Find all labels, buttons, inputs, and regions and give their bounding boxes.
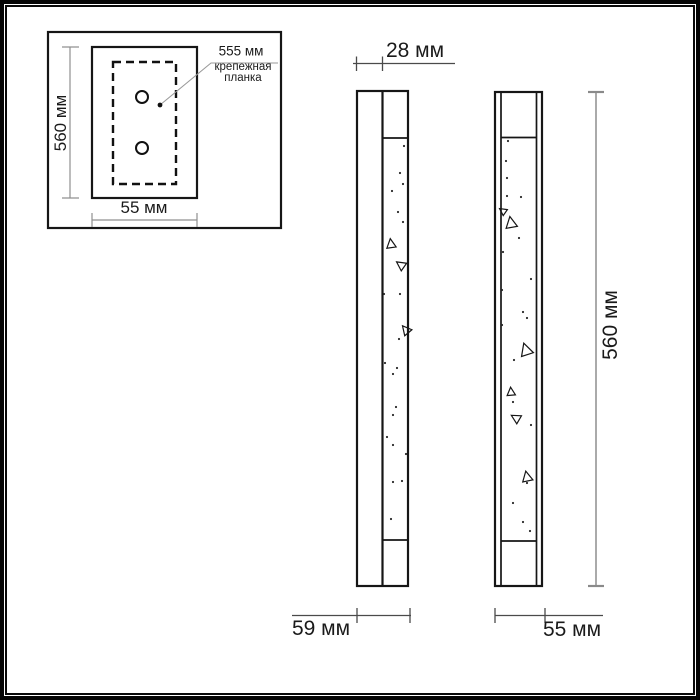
front-width-label: 55 мм [543, 618, 601, 642]
mounting-plate-outline [92, 47, 197, 198]
speck-dot [392, 373, 394, 375]
speck-dot [507, 140, 509, 142]
speck-dot [526, 317, 528, 319]
speck-triangle-icon [506, 387, 515, 396]
speck-dot [530, 424, 532, 426]
speck-triangle-icon [399, 323, 412, 336]
speck-dot [383, 293, 385, 295]
speck-dot [505, 160, 507, 162]
inset-width-label: 55 мм [120, 198, 167, 218]
front-diffuser-specks [497, 140, 533, 532]
speck-triangle-icon [497, 206, 507, 216]
side-view-outline [357, 91, 408, 586]
speck-triangle-icon [386, 238, 397, 248]
speck-dot [501, 324, 503, 326]
side-depth-total-label: 59 мм [292, 617, 350, 641]
mounting-hole-bottom-icon [136, 142, 148, 154]
plate-caption: крепежная планка [215, 62, 272, 84]
front-view-outline [495, 92, 542, 586]
speck-dot [395, 406, 397, 408]
speck-dot [390, 518, 392, 520]
speck-dot [398, 338, 400, 340]
speck-triangle-icon [504, 216, 517, 229]
inset-height-label: 560 мм [51, 95, 71, 151]
plate-caption-line2: планка [215, 73, 272, 84]
speck-dot [506, 195, 508, 197]
speck-dot [522, 311, 524, 313]
speck-triangle-icon [521, 470, 533, 482]
speck-dot [518, 237, 520, 239]
speck-dot [402, 221, 404, 223]
speck-dot [392, 444, 394, 446]
speck-dot [391, 190, 393, 192]
speck-dot [399, 293, 401, 295]
speck-dot [513, 359, 515, 361]
speck-dot [397, 211, 399, 213]
speck-dot [384, 362, 386, 364]
speck-dot [392, 414, 394, 416]
speck-dot [402, 183, 404, 185]
speck-triangle-icon [394, 258, 407, 271]
speck-triangle-icon [509, 411, 521, 424]
speck-dot [392, 481, 394, 483]
mounting-hole-top-icon [136, 91, 148, 103]
drawing-overlay [0, 0, 700, 700]
speck-dot [520, 196, 522, 198]
speck-dot [403, 145, 405, 147]
speck-dot [526, 482, 528, 484]
speck-triangle-icon [518, 341, 534, 356]
side-depth-top-label: 28 мм [386, 39, 444, 63]
speck-dot [512, 401, 514, 403]
speck-dot [401, 480, 403, 482]
diagram-canvas: 555 мм крепежная планка 560 мм 55 мм 28 … [0, 0, 700, 700]
front-height-label: 560 мм [599, 290, 623, 360]
speck-dot [502, 251, 504, 253]
speck-dot [529, 530, 531, 532]
speck-dot [501, 289, 503, 291]
plate-size-label: 555 мм [219, 44, 264, 59]
mounting-plate-dashed-outline [113, 62, 176, 184]
speck-dot [405, 453, 407, 455]
speck-dot [530, 278, 532, 280]
speck-dot [522, 521, 524, 523]
speck-dot [506, 177, 508, 179]
speck-dot [512, 502, 514, 504]
speck-dot [396, 367, 398, 369]
speck-dot [399, 172, 401, 174]
speck-dot [386, 436, 388, 438]
